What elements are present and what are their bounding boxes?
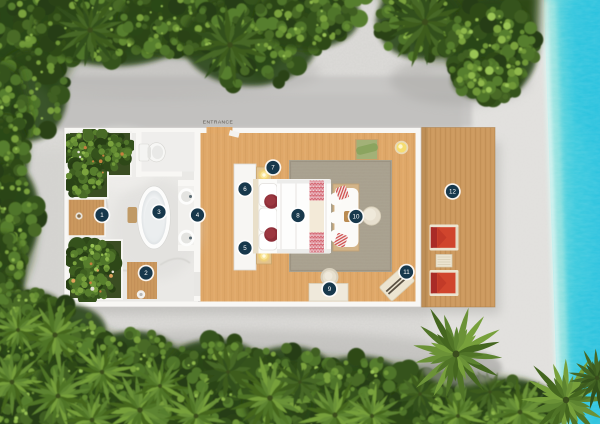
svg-text:11: 11 — [403, 269, 410, 276]
svg-text:5: 5 — [243, 245, 247, 252]
svg-text:3: 3 — [157, 209, 161, 216]
svg-text:9: 9 — [328, 286, 332, 293]
svg-text:10: 10 — [353, 214, 360, 221]
svg-text:2: 2 — [144, 270, 148, 277]
svg-text:8: 8 — [296, 213, 300, 220]
svg-text:6: 6 — [243, 186, 247, 193]
svg-text:1: 1 — [100, 212, 104, 219]
svg-text:7: 7 — [271, 165, 275, 172]
svg-text:ENTRANCE: ENTRANCE — [203, 120, 234, 126]
svg-text:4: 4 — [196, 212, 200, 219]
svg-text:12: 12 — [449, 189, 456, 196]
